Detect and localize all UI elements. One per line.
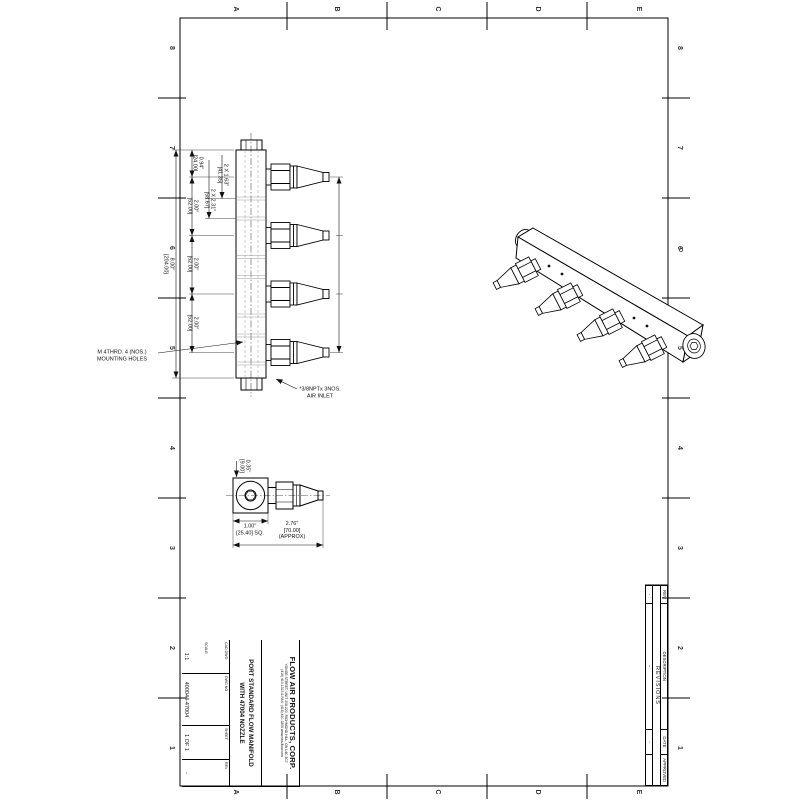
zone-letter-top-c: C bbox=[433, 6, 441, 11]
drawing-title-line2: WITH 47004 NOZZLE bbox=[237, 640, 245, 786]
zone-number-left-8: 8 bbox=[167, 46, 175, 50]
note-mounting-holes: M 4THRD. 4 (NOS.) MOUNTING HOLES bbox=[97, 349, 147, 362]
revisions-header-row: REV DESCRIPTION DATE APPROVED bbox=[660, 586, 667, 785]
zone-number-left-4: 4 bbox=[167, 446, 175, 450]
zone-letter-bottom-d: D bbox=[533, 789, 541, 794]
company-name: FLOW AIR PRODUCTS, CORP. bbox=[288, 640, 297, 786]
revision-date-value: - bbox=[645, 730, 651, 756]
zone-letter-top-a: A bbox=[231, 6, 239, 11]
dim-port-depth-a: 2 X 1.63" [41.35] bbox=[216, 164, 229, 186]
zone-number-right-2: 2 bbox=[675, 646, 683, 650]
dim-nozzle-pitch-3: 2.00" [52.00] bbox=[186, 315, 199, 332]
company-address-line2: (416) 410-1313 & FAX: (416) 410-1806 www… bbox=[279, 640, 283, 786]
dim-orifice: 0.35" [9.00] bbox=[238, 459, 251, 473]
nozzle-1 bbox=[266, 164, 329, 190]
field-rev: REV - bbox=[182, 760, 229, 786]
zone-letter-top-b: B bbox=[332, 6, 340, 11]
zone-number-right-1: 1 bbox=[675, 746, 683, 750]
drawing-sheet: A B C D E A B C D E 8 7 6 5 4 3 2 1 8 7 … bbox=[0, 0, 800, 800]
zone-letter-bottom-b: B bbox=[332, 789, 340, 794]
zone-number-left-1: 1 bbox=[167, 746, 175, 750]
dim-overall-length: 8.00" [204.00] bbox=[162, 254, 175, 274]
dim-nozzle-pitch-2: 2.00" [52.00] bbox=[186, 256, 199, 273]
iso-nozzle-2 bbox=[532, 281, 585, 322]
iso-nozzle-3 bbox=[574, 307, 627, 348]
revision-rev-value: - bbox=[645, 586, 651, 604]
zone-number-right-6: 6 bbox=[675, 246, 683, 250]
title-block: FLOW AIR PRODUCTS, CORP. YONGE STREET, U… bbox=[183, 640, 300, 786]
zone-letter-bottom-c: C bbox=[433, 789, 441, 794]
drawing-title-line1: PORT STANDARD FLOW MANIFOLD bbox=[246, 640, 254, 786]
zone-number-right-5: 5 bbox=[675, 346, 683, 350]
revisions-header-description: DESCRIPTION bbox=[661, 604, 667, 730]
dim-top-offset: 0.94" [24.00] bbox=[191, 155, 204, 172]
title-block-drawing-title: PORT STANDARD FLOW MANIFOLD WITH 47004 N… bbox=[229, 640, 261, 786]
revisions-table: REV DESCRIPTION DATE APPROVED REVISIONS … bbox=[645, 585, 668, 786]
revisions-data-row: - -- - bbox=[645, 586, 651, 785]
revisions-title-row: REVISIONS bbox=[652, 586, 660, 785]
nozzle-4 bbox=[266, 340, 329, 366]
zone-number-right-4: 4 bbox=[675, 446, 683, 450]
dim-nozzle-pitch-1: 2.00" [52.00] bbox=[186, 198, 199, 215]
iso-nozzle-4 bbox=[616, 333, 669, 374]
nozzle-3 bbox=[266, 281, 329, 307]
zone-number-left-7: 7 bbox=[167, 146, 175, 150]
revisions-header-rev: REV bbox=[661, 586, 667, 604]
zone-number-left-6: 6 bbox=[167, 246, 175, 250]
dim-port-depth-b: 2 X 2.31" [58.67] bbox=[203, 189, 216, 211]
zone-number-right-3: 3 bbox=[675, 546, 683, 550]
zone-letter-bottom-a: A bbox=[231, 789, 239, 794]
title-block-fields: CAD DWG SCALE 1:1 DWG NO 400044-47004 SH… bbox=[182, 640, 229, 786]
revisions-title: REVISIONS bbox=[653, 586, 660, 785]
field-scale: CAD DWG SCALE 1:1 bbox=[182, 640, 229, 674]
nozzle-2 bbox=[266, 223, 329, 249]
drawing-canvas bbox=[0, 0, 800, 800]
field-dwg-no: DWG NO 400044-47004 bbox=[182, 674, 229, 726]
note-air-inlet: *3/8NPTx 3NOS. AIR INLET bbox=[299, 386, 341, 399]
zone-number-left-5: 5 bbox=[167, 346, 175, 350]
iso-nozzle-1 bbox=[490, 255, 543, 296]
revisions-header-approved: APPROVED bbox=[661, 755, 667, 785]
field-sheet: SHEET 1 OF 1 bbox=[182, 726, 229, 760]
revision-description-value: -- bbox=[645, 604, 651, 730]
dim-flange-square: 1.00" [25.40] SQ. bbox=[236, 523, 264, 536]
zone-letter-bottom-e: E bbox=[634, 790, 642, 795]
title-block-company-row: FLOW AIR PRODUCTS, CORP. YONGE STREET, U… bbox=[261, 640, 299, 786]
zone-number-right-8: 8 bbox=[675, 46, 683, 50]
zone-letter-top-e: E bbox=[634, 7, 642, 12]
zone-number-left-3: 3 bbox=[167, 546, 175, 550]
zone-letter-top-d: D bbox=[533, 6, 541, 11]
revisions-header-date: DATE bbox=[661, 730, 667, 756]
revision-approved-value bbox=[645, 755, 651, 785]
zone-number-left-2: 2 bbox=[167, 646, 175, 650]
zone-number-right-7: 7 bbox=[675, 146, 683, 150]
dim-nozzle-length: 2.76" [70.00] (APPROX) bbox=[279, 521, 306, 541]
